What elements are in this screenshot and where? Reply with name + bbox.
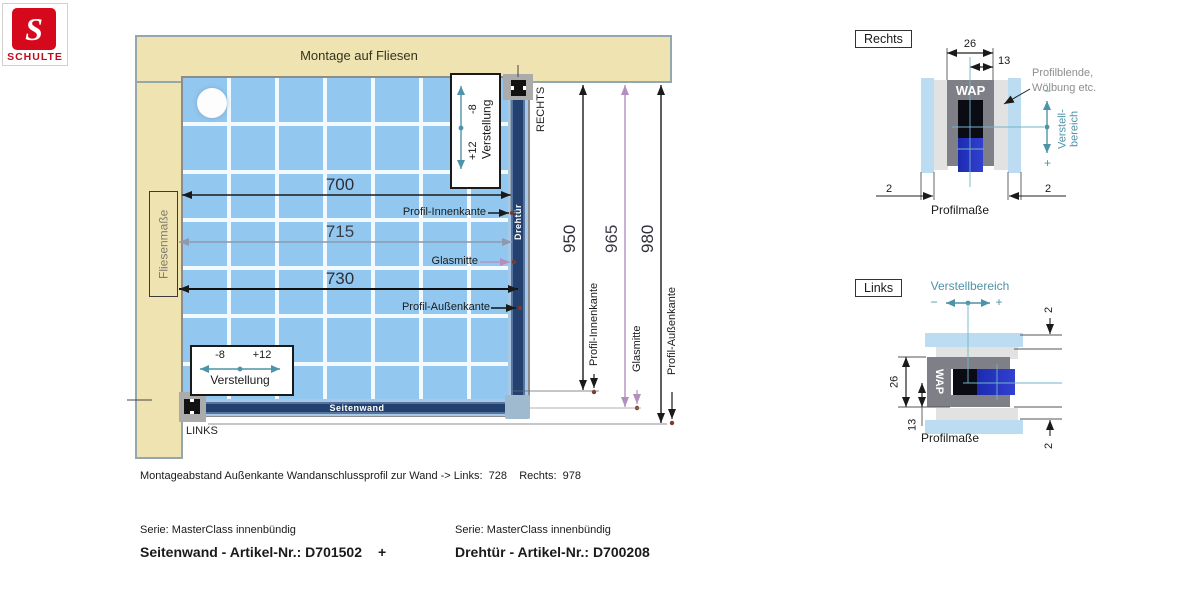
dim-965-label: 965 (603, 215, 621, 263)
glasmitte-label-h: Glasmitte (398, 255, 478, 267)
links-wap-label: WAP (930, 360, 948, 404)
rechts-verstell-plus: + (1041, 156, 1054, 170)
rechts-profilmasse-caption: Profilmaße (915, 203, 1005, 217)
rechts-detail-title: Rechts (855, 30, 912, 48)
profil-innenkante-label-v: Profil-Innenkante (587, 276, 601, 372)
logo-letter: S (25, 11, 43, 48)
artikel-plus: + (378, 544, 386, 560)
dim-950-label: 950 (561, 215, 579, 263)
rechts-dim-2-right: 2 (1041, 183, 1055, 195)
dim-730-label: 730 (300, 269, 380, 289)
glasmitte-label-v: Glasmitte (630, 310, 644, 388)
verstellung-h-label: Verstellung (190, 373, 290, 387)
montageabstand-note: Montageabstand Außenkante Wandanschlussp… (140, 470, 581, 482)
links-detail-title: Links (855, 279, 902, 297)
links-dim-2-bottom: 2 (1043, 439, 1055, 453)
rechts-wap-label: WAP (947, 83, 994, 98)
rechts-dim-26: 26 (946, 38, 994, 50)
logo: S SCHULTE (2, 3, 68, 66)
dim-700-label: 700 (300, 175, 380, 195)
artikel-left: Seitenwand - Artikel-Nr.: D701502 (140, 544, 362, 560)
links-profilmasse-caption: Profilmaße (905, 431, 995, 445)
installation-drawing: S SCHULTE Montage auf Fliesen Fliesenmaß… (0, 0, 1196, 600)
links-dim-26: 26 (888, 366, 901, 398)
verstellung-v-plus: +12 (466, 133, 480, 169)
links-side-label: LINKS (186, 425, 218, 437)
verstellung-v-label: Verstellung (479, 80, 494, 178)
rechts-verstell-minus: − (1041, 84, 1054, 98)
links-dim-2-top: 2 (1043, 303, 1055, 317)
rechts-side-label: RECHTS (533, 82, 549, 136)
profil-innenkante-label-h: Profil-Innenkante (386, 206, 486, 218)
rechts-dim-13: 13 (998, 55, 1020, 67)
verstellung-h-plus: +12 (245, 349, 279, 361)
serie-left: Serie: MasterClass innenbündig (140, 524, 296, 536)
fliesenmasse-label: Fliesenmaße (149, 191, 178, 297)
links-verstell-plus: + (993, 295, 1005, 309)
rechts-dim-2-left: 2 (882, 183, 896, 195)
dim-715-label: 715 (300, 222, 380, 242)
profilblende-note-line1: Profilblende, (1032, 66, 1132, 81)
profil-aussenkante-label-v: Profil-Außenkante (665, 272, 679, 390)
links-verstell-minus: − (928, 295, 940, 309)
verstellung-v-minus: -8 (466, 93, 480, 125)
rechts-verstellbereich-line2: bereich (1068, 100, 1081, 158)
serie-right: Serie: MasterClass innenbündig (455, 524, 611, 536)
verstellung-h-minus: -8 (205, 349, 235, 361)
artikel-right: Drehtür - Artikel-Nr.: D700208 (455, 544, 650, 560)
dim-980-label: 980 (639, 215, 657, 263)
logo-brand-text: SCHULTE (3, 51, 67, 63)
montage-title: Montage auf Fliesen (279, 48, 439, 63)
links-verstellbereich-label: Verstellbereich (920, 279, 1020, 293)
links-detail-dimensions (898, 301, 1062, 436)
logo-mark: S (12, 8, 56, 50)
profil-aussenkante-label-h: Profil-Außenkante (376, 301, 490, 313)
